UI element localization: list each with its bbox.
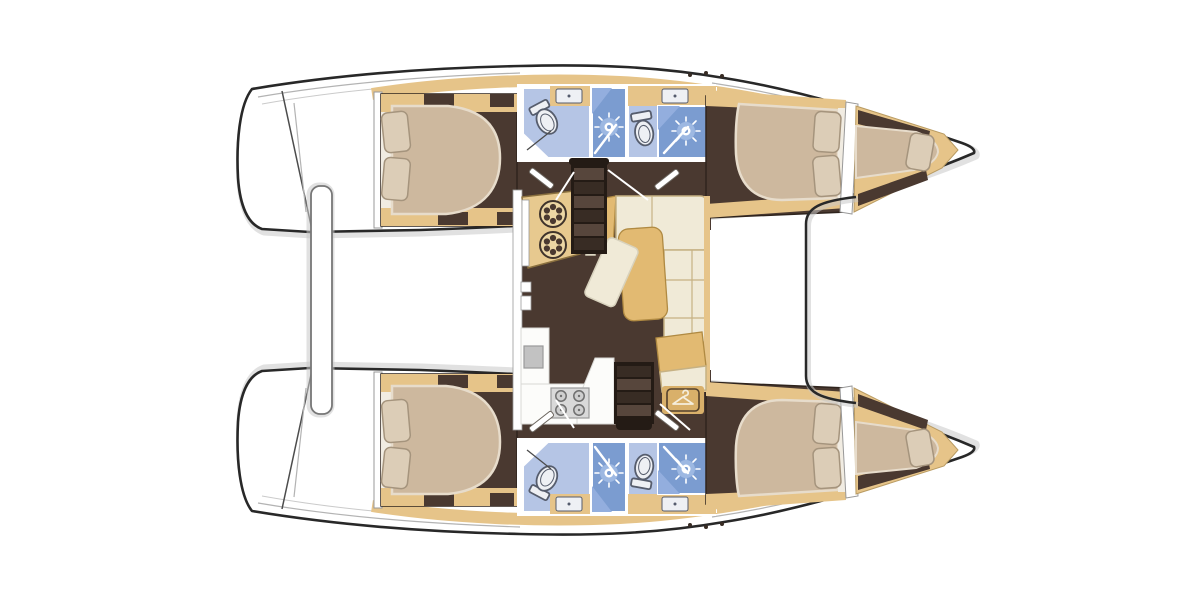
pillow <box>381 157 411 201</box>
cleat-icon <box>720 74 724 78</box>
galley-fitting <box>521 296 531 310</box>
forward-cabin <box>706 90 858 218</box>
pillow <box>381 111 411 153</box>
winch-icon <box>540 201 566 227</box>
sofa-right-seat <box>664 250 706 342</box>
bridgedeck-saloon <box>513 158 710 438</box>
pillow <box>813 111 842 153</box>
starboard-companionway-stairs <box>614 362 654 430</box>
pillow <box>905 132 935 172</box>
console-side <box>522 200 529 266</box>
aft-cabin <box>374 92 519 228</box>
galley-sink <box>524 346 543 368</box>
port-companionway-stairs <box>569 158 609 254</box>
cleat-icon <box>688 73 692 77</box>
catamaran-floor-plan <box>0 0 1200 600</box>
winch-icon <box>540 232 566 258</box>
deck-hatch-icon <box>490 94 514 107</box>
cockpit-recess-shadow <box>808 199 858 405</box>
shower-rose-icon <box>595 113 623 141</box>
companionway-frame <box>616 420 652 430</box>
galley-fitting <box>521 282 531 292</box>
basin-drain <box>674 95 677 98</box>
forward-cockpit-recess <box>806 197 856 403</box>
cleat-icon <box>704 71 708 75</box>
floor-plan-canvas <box>0 0 1200 600</box>
stern-platform <box>311 186 332 414</box>
pillow <box>812 155 841 197</box>
stove-icon <box>551 388 589 418</box>
wardrobe <box>662 386 704 414</box>
companionway-frame <box>569 158 609 165</box>
basin-drain <box>568 95 571 98</box>
bathrooms <box>517 84 716 162</box>
forepeak-berth <box>854 106 958 212</box>
